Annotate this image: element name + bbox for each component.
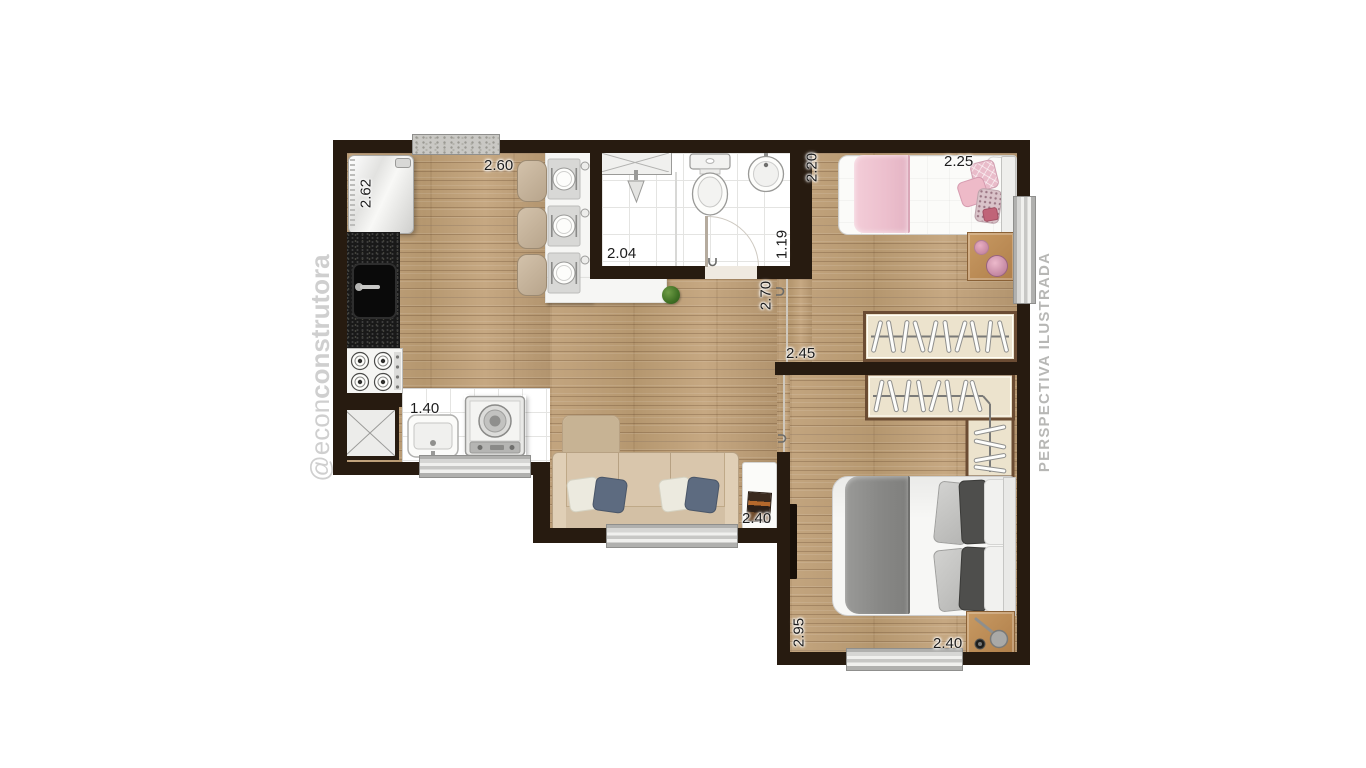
dim-kitchen-width: 2.60 [484,157,513,174]
laundry-shaft-x-icon [345,410,395,456]
place-settings [547,158,591,298]
bed1-headboard [1003,477,1016,616]
wall-bathroom-bottom-a [590,266,705,279]
bedroom1-door-handle-icon [777,432,789,444]
bed1-lamp [968,613,1014,653]
kitchen-sink-basin [352,263,397,319]
wall-bedroom2-bottom [775,362,1017,375]
dim-bath-width: 1.19 [774,227,791,263]
kitchen-faucet-arm [360,285,380,289]
counter-plant [662,286,680,304]
bed2-lamp [974,240,989,255]
sofa-armrest-right [724,453,738,533]
dim-hall-depth: 2.70 [758,278,775,314]
dim-service-width: 1.40 [410,400,439,417]
dim-bedroom2-depth: 2.20 [804,150,821,186]
cooktop [345,348,403,394]
place-setting [548,253,589,293]
bedroom1-door-panel [789,504,797,579]
refrigerator-hinge-strip [350,159,355,229]
dim-bath-shower-width: 2.04 [607,245,636,262]
dim-bedroom1-width: 2.40 [933,635,962,652]
floorplan-canvas: 2.62 2.60 2.04 1.19 2.20 2.25 2.70 2.45 … [0,0,1366,768]
wardrobe2 [863,311,1017,367]
bed2-pillow-small [982,207,999,222]
refrigerator-handle [395,158,411,168]
bedroom2-door-handle-icon [775,285,787,297]
washbasin-icon [746,152,786,194]
wall-left [333,140,347,475]
bar-stool-1 [517,160,547,202]
dim-kitchen-depth: 2.62 [358,176,375,212]
toilet-icon [686,152,734,220]
dim-living-width: 2.40 [742,510,771,527]
wall-bathroom-left [590,140,602,279]
place-setting [548,206,589,246]
shower-head-icon [625,170,649,206]
bar-stool-2 [517,207,547,249]
dim-bedroom2-width: 2.25 [944,153,973,170]
laundry-window [419,455,531,478]
brand-watermark: @econconstrutora [305,233,335,503]
kitchen-window-granite [412,134,500,155]
bed2-decor-disc [986,255,1008,277]
wall-bedroom1-left [777,452,790,665]
sofa-armrest-left [553,453,567,533]
dim-hall-width: 2.45 [786,345,815,362]
place-setting [548,159,589,199]
wardrobe1-hangers [865,372,1015,480]
wardrobe2-hangers [863,311,1017,362]
bathroom-door-handle-icon [707,257,719,269]
dim-bedroom1-depth: 2.95 [791,615,808,651]
laundry-tank [406,413,460,461]
living-window [606,524,738,548]
wall-kitchen-laundry [333,393,402,407]
washing-machine [464,395,526,457]
sofa-pillow-blue-1 [592,476,628,514]
bedroom2-window [1013,196,1036,304]
brand-watermark-bold: construtora [305,254,335,398]
perspective-note: PERSPECTIVA ILUSTRADA [1036,247,1056,477]
wardrobe1 [865,372,1015,485]
bar-stool-3 [517,254,547,296]
bed1-blanket-gray [845,476,910,614]
laundry-shaft [341,406,399,460]
brand-watermark-light: @econ [305,399,335,482]
sofa-pillow-blue-2 [684,476,720,514]
bed2-blanket-pink [854,155,910,233]
shower-partition [675,172,677,266]
kitchen-granite-counter [345,232,400,348]
